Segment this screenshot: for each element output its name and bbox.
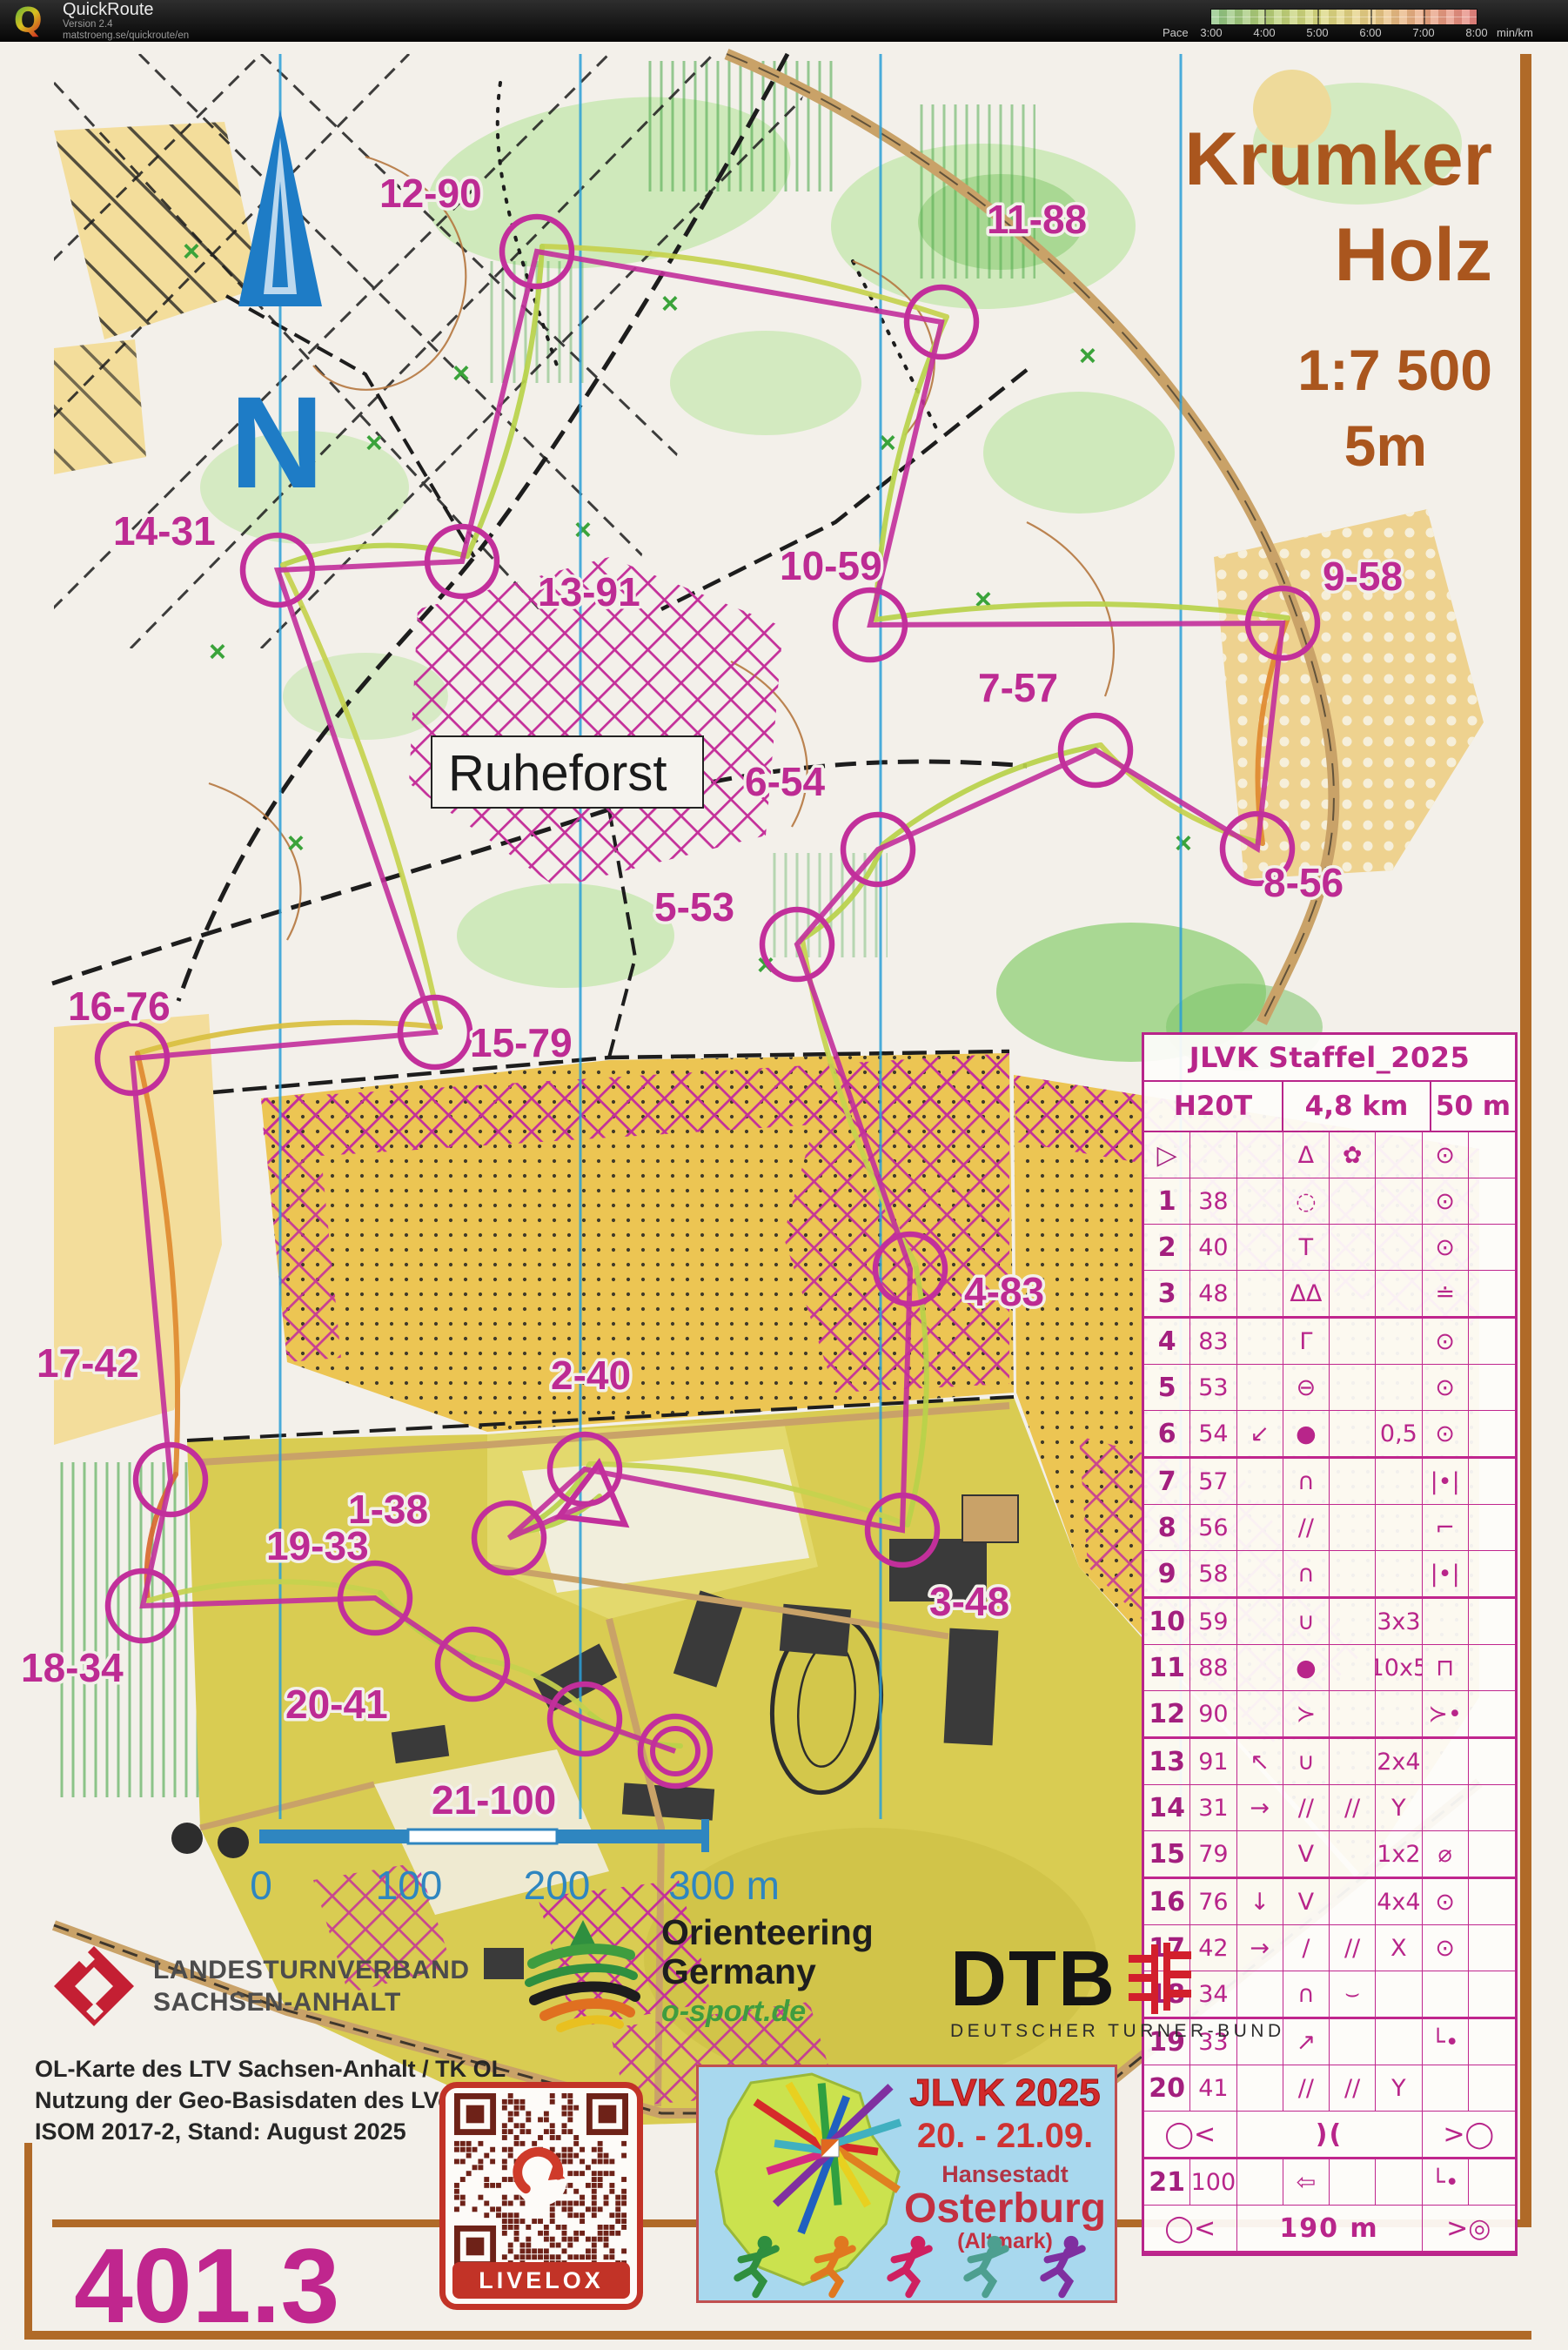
sheet-symbol-cell <box>1469 1132 1515 1178</box>
svg-text:×: × <box>183 235 200 268</box>
sheet-symbol-cell <box>1469 2019 1515 2065</box>
control-label: 18-34 <box>21 1645 124 1690</box>
svg-text:×: × <box>661 287 679 320</box>
sheet-symbol-cell <box>1237 1271 1283 1319</box>
svg-text:Holz: Holz <box>1334 213 1492 297</box>
sheet-symbol-cell: ⇦ <box>1283 2159 1330 2206</box>
sheet-symbol-cell <box>1376 1132 1422 1178</box>
sheet-symbol-cell: ✿ <box>1330 1132 1376 1178</box>
control-label: 9-58 <box>1323 554 1403 599</box>
control-label: 6-54 <box>745 759 825 804</box>
control-label: 4-83 <box>964 1269 1044 1314</box>
control-label: 19-33 <box>266 1523 369 1568</box>
sheet-control-number: 1 <box>1144 1178 1190 1225</box>
sheet-symbol-cell: ∩ <box>1283 1551 1330 1599</box>
sheet-symbol-cell: ⊙ <box>1423 1178 1469 1225</box>
sheet-route-cell: 190 m <box>1237 2206 1423 2253</box>
sheet-symbol-cell <box>1330 2019 1376 2065</box>
poster-title: JLVK 2025 <box>909 2071 1100 2114</box>
sheet-symbol-cell: ⌣ <box>1330 1971 1376 2019</box>
sheet-symbol-cell <box>1237 1459 1283 1505</box>
sheet-symbol-cell <box>1469 1925 1515 1971</box>
sheet-symbol-cell: // <box>1283 1785 1330 1831</box>
sheet-symbol-cell <box>1469 1459 1515 1505</box>
sheet-symbol-cell <box>1237 1645 1283 1691</box>
app-name: QuickRoute <box>63 1 189 20</box>
orienteering-germany-icon <box>515 1913 646 2035</box>
sheet-route-cell: )( <box>1237 2112 1423 2159</box>
sheet-symbol-cell: 4x4 <box>1376 1879 1422 1925</box>
sheet-symbol-cell: ⊙ <box>1423 1365 1469 1411</box>
sheet-symbol-cell <box>1469 1739 1515 1785</box>
app-header: Q QuickRoute Version 2.4 matstroeng.se/q… <box>0 0 1568 42</box>
svg-text:0: 0 <box>250 1863 272 1908</box>
quickroute-logo-icon: Q <box>12 1 50 41</box>
sheet-control-number: ▷ <box>1144 1132 1190 1178</box>
sheet-symbol-cell: ⊙ <box>1423 1925 1469 1971</box>
sheet-symbol-cell <box>1469 1785 1515 1831</box>
sheet-symbol-cell: ∪ <box>1283 1739 1330 1785</box>
sheet-symbol-cell <box>1237 1319 1283 1365</box>
sheet-symbol-cell: ⊖ <box>1283 1365 1330 1411</box>
sheet-symbol-cell <box>1237 1178 1283 1225</box>
livelox-qr-block[interactable]: LIVELOX <box>439 2082 643 2310</box>
event-poster: JLVK 2025 20. - 21.09. Hansestadt Osterb… <box>696 2065 1117 2303</box>
svg-text:×: × <box>365 426 383 460</box>
sheet-symbol-cell <box>1469 2065 1515 2112</box>
sheet-symbol-cell <box>1330 1831 1376 1879</box>
sheet-symbol-cell <box>1330 1271 1376 1319</box>
course-climb: 50 m <box>1431 1082 1515 1131</box>
control-label: 7-57 <box>978 665 1058 710</box>
control-label: 14-31 <box>113 508 216 554</box>
sheet-route-cell: ◯< <box>1144 2112 1237 2159</box>
sheet-symbol-cell: 2x4 <box>1376 1739 1422 1785</box>
sheet-route-cell: >◯ <box>1423 2112 1516 2159</box>
sheet-control-code: 57 <box>1190 1459 1236 1505</box>
livelox-label: LIVELOX <box>452 2262 630 2299</box>
sheet-symbol-cell: ↙ <box>1237 1411 1283 1459</box>
og-line1: Orienteering <box>661 1913 874 1952</box>
svg-text:300 m: 300 m <box>668 1863 780 1908</box>
sheet-symbol-cell <box>1330 1551 1376 1599</box>
sheet-control-number: 15 <box>1144 1831 1190 1879</box>
sheet-symbol-cell <box>1376 1505 1422 1551</box>
sheet-symbol-cell <box>1330 1645 1376 1691</box>
sheet-symbol-cell <box>1330 1178 1376 1225</box>
sheet-symbol-cell: // <box>1283 1505 1330 1551</box>
sheet-symbol-cell: V <box>1283 1879 1330 1925</box>
sheet-symbol-cell: ∩ <box>1283 1971 1330 2019</box>
sheet-control-number: 4 <box>1144 1319 1190 1365</box>
qr-code <box>452 2093 630 2267</box>
svg-text:×: × <box>574 514 592 547</box>
sheet-control-code: 88 <box>1190 1645 1236 1691</box>
control-label: 21-100 <box>432 1777 556 1823</box>
sheet-control-code: 76 <box>1190 1879 1236 1925</box>
svg-text:200: 200 <box>524 1863 591 1908</box>
sheet-symbol-cell <box>1330 1319 1376 1365</box>
sheet-symbol-cell: 0,5 <box>1376 1411 1422 1459</box>
control-label: 10-59 <box>780 543 882 588</box>
control-label: 3-48 <box>929 1579 1009 1624</box>
sheet-symbol-cell <box>1376 1319 1422 1365</box>
sheet-control-number: 21 <box>1144 2159 1190 2206</box>
sheet-symbol-cell <box>1376 1271 1422 1319</box>
sheet-control-number: 5 <box>1144 1365 1190 1411</box>
sheet-control-code: 91 <box>1190 1739 1236 1785</box>
sheet-control-number: 10 <box>1144 1599 1190 1645</box>
sheet-symbol-cell <box>1376 2019 1422 2065</box>
sheet-symbol-cell <box>1469 1691 1515 1739</box>
sheet-control-code: 79 <box>1190 1831 1236 1879</box>
course-name: JLVK Staffel_2025 <box>1144 1035 1515 1082</box>
control-label: 2-40 <box>551 1353 631 1398</box>
sheet-control-code: 48 <box>1190 1271 1236 1319</box>
sheet-symbol-cell <box>1330 1505 1376 1551</box>
sheet-control-number: 12 <box>1144 1691 1190 1739</box>
sheet-symbol-cell <box>1469 1225 1515 1271</box>
sheet-symbol-cell: 10x5 <box>1376 1645 1422 1691</box>
area-label: Ruheforst <box>448 745 667 802</box>
control-label: 17-42 <box>37 1340 139 1386</box>
sheet-symbol-cell <box>1469 1365 1515 1411</box>
dtb-icon <box>1129 1943 1191 2016</box>
pace-tick: 3:00 <box>1200 26 1222 39</box>
sheet-symbol-cell: |•| <box>1423 1459 1469 1505</box>
control-label: 5-53 <box>654 884 734 930</box>
svg-text:×: × <box>975 583 992 616</box>
dtb-subtitle: DEUTSCHER TURNER-BUND <box>950 2021 1285 2042</box>
sheet-symbol-cell: ∪ <box>1283 1599 1330 1645</box>
sheet-control-code: 54 <box>1190 1411 1236 1459</box>
sheet-symbol-cell: ⊓ <box>1423 1645 1469 1691</box>
sheet-symbol-cell <box>1469 1971 1515 2019</box>
dtb-logo-block: DTB DEUTSCHER TURNER-BUND <box>950 1943 1285 2042</box>
north-arrow-icon: N <box>230 110 324 515</box>
sheet-symbol-cell: ⌀ <box>1423 1831 1469 1879</box>
svg-text:N: N <box>230 369 324 515</box>
ltv-logo-icon <box>45 1937 136 2035</box>
sheet-symbol-cell <box>1423 1971 1469 2019</box>
course-class: H20T <box>1144 1082 1283 1131</box>
sheet-symbol-cell <box>1469 1879 1515 1925</box>
sheet-control-number: 3 <box>1144 1271 1190 1319</box>
sheet-control-code: 53 <box>1190 1365 1236 1411</box>
sheet-symbol-cell: → <box>1237 1785 1283 1831</box>
sheet-control-code: 31 <box>1190 1785 1236 1831</box>
sheet-symbol-cell <box>1469 1271 1515 1319</box>
og-line2: Germany <box>661 1952 874 1991</box>
control-label: 15-79 <box>470 1020 573 1065</box>
ltv-name-line1: LANDESTURNVERBAND <box>153 1954 470 1987</box>
control-description-sheet: JLVK Staffel_2025 H20T 4,8 km 50 m ▷Δ✿⊙1… <box>1142 1032 1518 2256</box>
sheet-control-number: 11 <box>1144 1645 1190 1691</box>
sheet-symbol-cell <box>1376 2159 1422 2206</box>
control-label: 11-88 <box>987 197 1087 242</box>
sheet-symbol-cell: └• <box>1423 2019 1469 2065</box>
sheet-symbol-cell <box>1469 1505 1515 1551</box>
sheet-symbol-cell <box>1376 1365 1422 1411</box>
pace-tick: 6:00 <box>1359 26 1381 39</box>
runner-icon <box>891 2236 929 2294</box>
sheet-symbol-cell <box>1376 1551 1422 1599</box>
sheet-symbol-cell: // <box>1330 1925 1376 1971</box>
sheet-symbol-cell: ⊙ <box>1423 1411 1469 1459</box>
sheet-symbol-cell <box>1469 1599 1515 1645</box>
sheet-symbol-cell <box>1469 1645 1515 1691</box>
sheet-control-number: 8 <box>1144 1505 1190 1551</box>
sheet-symbol-cell: ↗ <box>1283 2019 1330 2065</box>
sheet-symbol-cell: V <box>1283 1831 1330 1879</box>
sheet-symbol-cell <box>1237 1599 1283 1645</box>
app-url[interactable]: matstroeng.se/quickroute/en <box>63 30 189 41</box>
svg-text:100: 100 <box>376 1863 443 1908</box>
svg-text:×: × <box>209 635 226 668</box>
sheet-symbol-cell <box>1376 1459 1422 1505</box>
sheet-symbol-cell <box>1423 1599 1469 1645</box>
sheet-symbol-cell <box>1237 1132 1283 1178</box>
sheet-symbol-cell: ⊙ <box>1423 1319 1469 1365</box>
sheet-control-code: 59 <box>1190 1599 1236 1645</box>
sheet-symbol-cell: // <box>1330 2065 1376 2112</box>
poster-city: Osterburg <box>904 2185 1106 2232</box>
svg-text:×: × <box>1079 339 1096 373</box>
map-title: Krumker Holz 1:7 500 5m <box>1184 117 1492 478</box>
sheet-symbol-cell <box>1237 1505 1283 1551</box>
control-label: 12-90 <box>379 171 482 216</box>
sheet-symbol-cell: ↖ <box>1237 1739 1283 1785</box>
sheet-symbol-cell: Y <box>1376 1785 1422 1831</box>
sheet-symbol-cell: X <box>1376 1925 1422 1971</box>
sheet-symbol-cell <box>1469 1551 1515 1599</box>
svg-text:×: × <box>452 357 470 390</box>
sheet-symbol-cell <box>1376 1225 1422 1271</box>
sheet-symbol-cell <box>1376 1971 1422 2019</box>
svg-text:Q: Q <box>14 1 43 40</box>
sheet-symbol-cell <box>1237 2159 1283 2206</box>
sheet-symbol-cell: 3x3 <box>1376 1599 1422 1645</box>
sheet-symbol-cell: Y <box>1376 2065 1422 2112</box>
sheet-symbol-cell <box>1330 1879 1376 1925</box>
sheet-control-number: 20 <box>1144 2065 1190 2112</box>
sheet-symbol-cell: |•| <box>1423 1551 1469 1599</box>
sheet-symbol-cell <box>1330 1599 1376 1645</box>
svg-text:1:7 500: 1:7 500 <box>1297 338 1492 402</box>
sheet-control-number: 9 <box>1144 1551 1190 1599</box>
sheet-symbol-cell: / <box>1283 1925 1330 1971</box>
sheet-symbol-cell <box>1330 1411 1376 1459</box>
pace-unit: min/km <box>1497 26 1533 39</box>
sheet-control-code: 41 <box>1190 2065 1236 2112</box>
ltv-logo-block: LANDESTURNVERBAND SACHSEN-ANHALT <box>45 1937 470 2035</box>
sheet-symbol-cell <box>1237 1831 1283 1879</box>
sheet-symbol-cell <box>1330 1691 1376 1739</box>
app-version: Version 2.4 <box>63 19 189 30</box>
svg-text:×: × <box>1175 827 1192 860</box>
sheet-symbol-cell <box>1469 1319 1515 1365</box>
svg-text:Krumker: Krumker <box>1184 117 1492 201</box>
sheet-control-number: 7 <box>1144 1459 1190 1505</box>
sheet-symbol-cell <box>1469 2159 1515 2206</box>
sheet-control-code: 40 <box>1190 1225 1236 1271</box>
sheet-symbol-cell: ↓ <box>1237 1879 1283 1925</box>
sheet-symbol-cell: ⊙ <box>1423 1225 1469 1271</box>
sheet-control-code: 83 <box>1190 1319 1236 1365</box>
sheet-route-cell: >◎ <box>1423 2206 1516 2253</box>
sheet-symbol-cell <box>1330 2159 1376 2206</box>
svg-text:5m: 5m <box>1344 413 1427 478</box>
sheet-symbol-cell: ● <box>1283 1411 1330 1459</box>
sheet-symbol-cell <box>1237 2065 1283 2112</box>
orienteering-germany-block: Orienteering Germany o-sport.de <box>515 1913 874 2035</box>
sheet-control-code: 100 <box>1190 2159 1236 2206</box>
sheet-symbol-cell <box>1469 1411 1515 1459</box>
sheet-control-number: 13 <box>1144 1739 1190 1785</box>
sheet-symbol-cell <box>1469 1178 1515 1225</box>
sheet-symbol-cell: ● <box>1283 1645 1330 1691</box>
sheet-symbol-cell: Γ <box>1283 1319 1330 1365</box>
sheet-control-number: 14 <box>1144 1785 1190 1831</box>
sheet-control-number: 16 <box>1144 1879 1190 1925</box>
pace-label: Pace <box>1163 26 1189 39</box>
sheet-symbol-cell: ◌ <box>1283 1178 1330 1225</box>
sheet-symbol-cell <box>1469 1831 1515 1879</box>
sheet-symbol-cell: ∩ <box>1283 1459 1330 1505</box>
svg-text:×: × <box>287 827 305 860</box>
control-label: 16-76 <box>68 984 171 1029</box>
dtb-word: DTB <box>950 1946 1116 2013</box>
course-length: 4,8 km <box>1283 1082 1431 1131</box>
sheet-symbol-cell <box>1330 1365 1376 1411</box>
pace-tick: 8:00 <box>1465 26 1487 39</box>
sheet-symbol-cell: ≐ <box>1423 1271 1469 1319</box>
sheet-symbol-cell <box>1423 1785 1469 1831</box>
sheet-symbol-cell: ≻• <box>1423 1691 1469 1739</box>
sheet-symbol-cell <box>1330 1225 1376 1271</box>
sheet-route-cell: ◯< <box>1144 2206 1237 2253</box>
sheet-symbol-cell <box>1330 1459 1376 1505</box>
pace-legend: Pace 3:00 4:00 5:00 6:00 7:00 8:00 min/k… <box>1150 0 1559 42</box>
sheet-symbol-cell: // <box>1283 2065 1330 2112</box>
sheet-symbol-cell: 1x2 <box>1376 1831 1422 1879</box>
sheet-symbol-cell <box>1330 1739 1376 1785</box>
sheet-control-number: 2 <box>1144 1225 1190 1271</box>
control-label: 20-41 <box>285 1682 388 1727</box>
control-label: 13-91 <box>538 569 640 614</box>
sheet-symbol-cell <box>1423 2065 1469 2112</box>
sheet-symbol-cell: // <box>1330 1785 1376 1831</box>
sheet-symbol-cell <box>1376 1178 1422 1225</box>
og-url[interactable]: o-sport.de <box>661 1995 874 2029</box>
sheet-control-number: 6 <box>1144 1411 1190 1459</box>
sheet-symbol-cell <box>1237 1691 1283 1739</box>
sheet-symbol-cell <box>1423 1739 1469 1785</box>
sheet-symbol-cell: T <box>1283 1225 1330 1271</box>
sheet-symbol-cell: ⊙ <box>1423 1879 1469 1925</box>
sheet-control-code: 56 <box>1190 1505 1236 1551</box>
poster-city-pre: Hansestadt <box>941 2161 1069 2187</box>
sheet-symbol-cell <box>1237 1365 1283 1411</box>
sheet-control-code: 38 <box>1190 1178 1236 1225</box>
pace-tick: 4:00 <box>1253 26 1275 39</box>
pace-tick: 5:00 <box>1306 26 1328 39</box>
control-label: 8-56 <box>1263 860 1344 905</box>
poster-dates: 20. - 21.09. <box>917 2117 1093 2155</box>
map-number: 401.3 <box>74 2226 339 2345</box>
sheet-control-code: 58 <box>1190 1551 1236 1599</box>
ltv-name-line2: SACHSEN-ANHALT <box>153 1986 470 2019</box>
sheet-symbol-cell: Δ <box>1283 1132 1330 1178</box>
sheet-control-code: 90 <box>1190 1691 1236 1739</box>
pace-tick: 7:00 <box>1412 26 1434 39</box>
sheet-symbol-cell: ΔΔ <box>1283 1271 1330 1319</box>
sheet-symbol-cell: ⊙ <box>1423 1132 1469 1178</box>
sheet-symbol-cell <box>1237 1551 1283 1599</box>
sheet-symbol-cell <box>1237 1225 1283 1271</box>
sheet-control-code <box>1190 1132 1236 1178</box>
sheet-symbol-cell: ⌐ <box>1423 1505 1469 1551</box>
sheet-symbol-cell <box>1376 1691 1422 1739</box>
pace-gradient-bar <box>1211 10 1477 24</box>
sheet-symbol-cell: ≻ <box>1283 1691 1330 1739</box>
sheet-symbol-cell: └• <box>1423 2159 1469 2206</box>
